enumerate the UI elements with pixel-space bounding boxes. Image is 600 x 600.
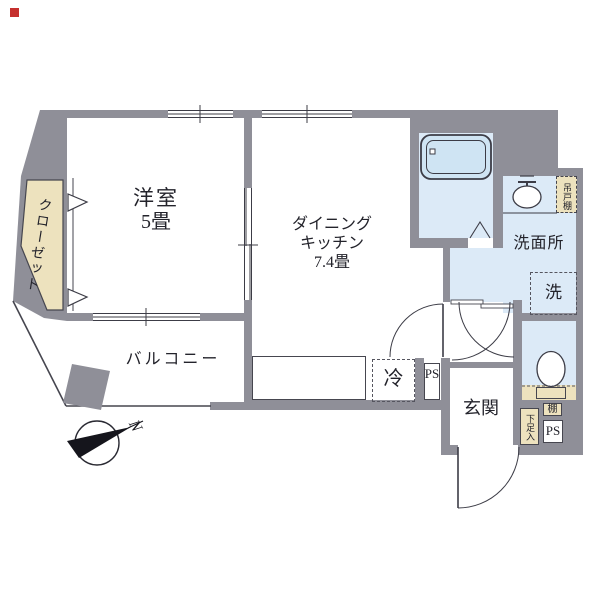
sink-icon — [503, 176, 557, 213]
room-size-dk: 7.4畳 — [280, 254, 384, 272]
hanging-cupboard-label: 吊戸棚 — [562, 180, 571, 212]
folding-door-icon — [470, 222, 490, 238]
room-label-western: 洋室 — [106, 186, 206, 210]
balcony-partition — [63, 364, 110, 410]
window-icon — [262, 105, 352, 123]
floor-plan: N 洋室 5畳 ダイニング キッチン 7.4畳 バルコニー 洗面所 玄関 クロー… — [0, 0, 600, 600]
pipe-space-kitchen-label: PS — [424, 366, 440, 383]
pipe-space-entrance-label: PS — [543, 424, 563, 439]
sliding-door-icon[interactable] — [238, 188, 258, 300]
closet-door-icon — [68, 194, 87, 211]
room-label-washroom: 洗面所 — [505, 235, 573, 253]
west-wall — [21, 110, 67, 176]
room-label-entrance: 玄関 — [450, 398, 512, 419]
shelf-label: 棚 — [543, 404, 562, 416]
washing-machine-label: 洗 — [530, 283, 577, 303]
shoe-cabinet-label: 下足入 — [525, 411, 534, 443]
compass-icon: N — [67, 416, 146, 465]
washroom-sliding-door-icon[interactable] — [451, 300, 513, 308]
bathtub-icon — [421, 135, 491, 179]
room-label-balcony: バルコニー — [116, 351, 230, 369]
toilet-tank — [536, 387, 566, 399]
closet-door-icon — [68, 289, 87, 306]
room-size-western: 5畳 — [106, 211, 206, 234]
refrigerator-label: 冷 — [372, 368, 415, 391]
window-icon — [168, 105, 233, 123]
window-icon — [93, 308, 200, 326]
toilet-icon — [537, 352, 565, 387]
room-label-dk-2: キッチン — [280, 235, 384, 253]
room-label-dk-1: ダイニング — [280, 216, 384, 234]
compass-north-label: N — [125, 416, 146, 435]
kitchen-counter — [252, 356, 366, 400]
plan-linework: N — [0, 0, 600, 600]
